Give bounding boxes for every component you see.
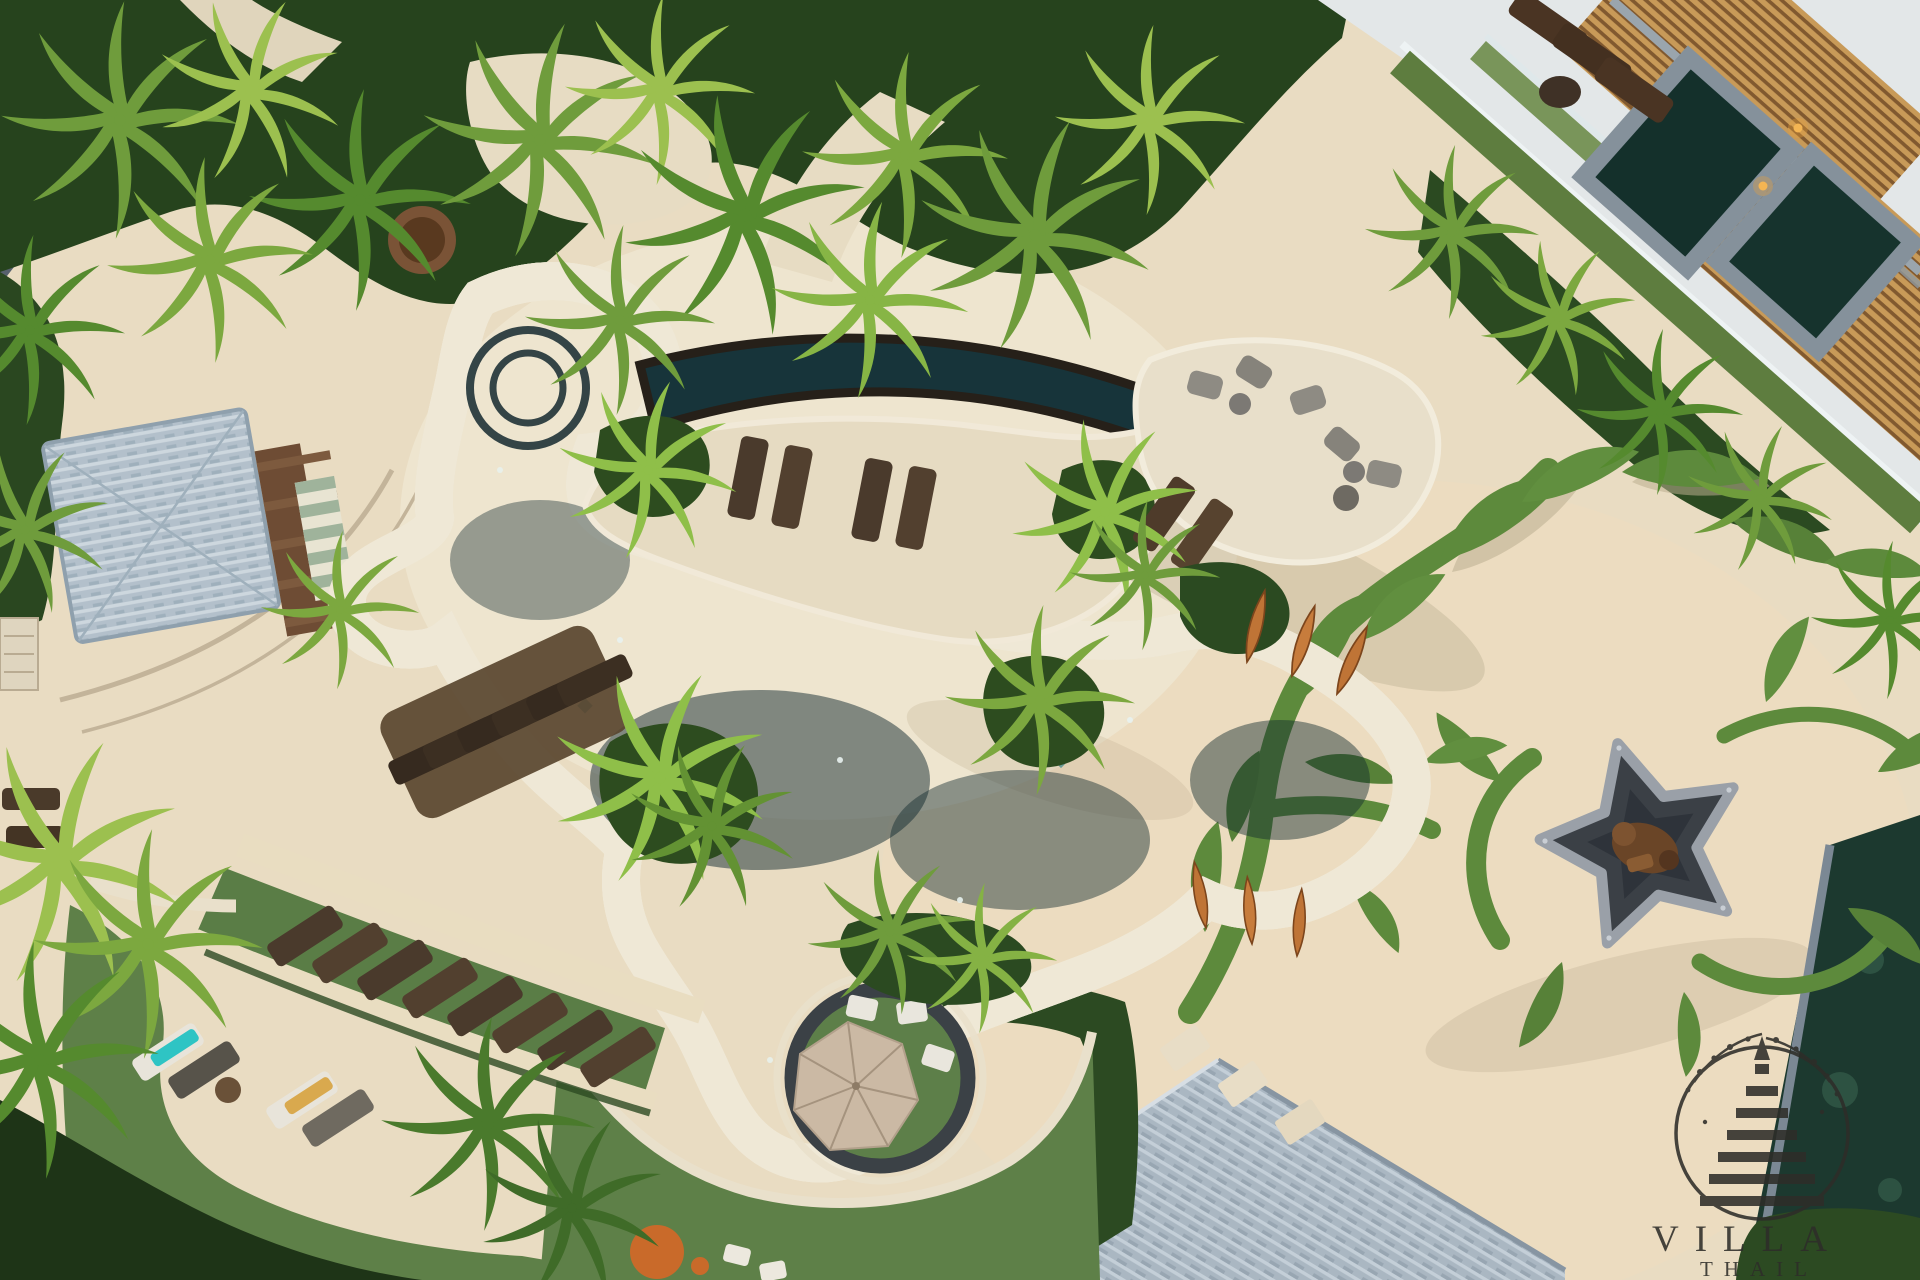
water-mottle (1190, 720, 1370, 840)
umbrella-pole (852, 1082, 860, 1090)
watermark-brand-text: VILLA (1652, 1219, 1843, 1260)
medallion-rim-dot (1606, 935, 1611, 940)
medallion-rim-dot (1726, 787, 1731, 792)
pool-light (617, 637, 623, 643)
pool-light (497, 467, 503, 473)
lounge-furniture (1612, 822, 1636, 846)
pool-light (837, 757, 843, 763)
round-table (1333, 485, 1359, 511)
watermark-secondary-text: THAIL (1700, 1257, 1818, 1280)
medallion-rim-dot (1616, 745, 1621, 750)
water-mottle (1878, 1178, 1902, 1202)
medallion-rim-dot (1542, 838, 1547, 843)
orange-stool (691, 1257, 709, 1275)
aerial-resort-photo: VILLA THAIL (0, 0, 1920, 1280)
terrace-light (1794, 124, 1803, 133)
terrace-light (1759, 182, 1768, 191)
pool-light (1127, 717, 1133, 723)
medallion-rim-dot (1720, 905, 1725, 910)
pouf (1229, 393, 1251, 415)
pool-light (957, 897, 963, 903)
round-side-table (215, 1077, 241, 1103)
scene-canvas: VILLA THAIL (0, 0, 1920, 1280)
pouf (1343, 461, 1365, 483)
round-side-table (1539, 76, 1581, 108)
pool-light (767, 1057, 773, 1063)
water-mottle (890, 770, 1150, 910)
lounge-furniture (1659, 850, 1679, 870)
